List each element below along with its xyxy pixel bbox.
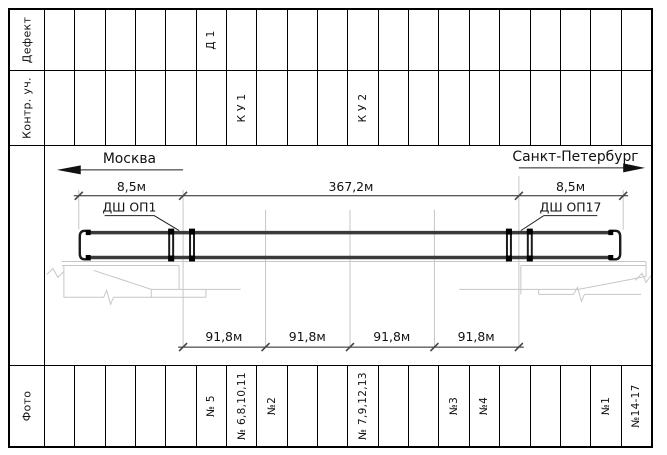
defect-cell bbox=[439, 10, 469, 70]
expansion-joint bbox=[168, 229, 174, 262]
defect-cell bbox=[45, 10, 75, 70]
photo-cell bbox=[318, 366, 348, 446]
control-cell-text: К У 1 bbox=[236, 94, 248, 123]
control-row-label: Контр. уч. bbox=[21, 77, 34, 139]
photo-cell bbox=[75, 366, 105, 446]
defect-cell: Д 1 bbox=[197, 10, 227, 70]
control-cell bbox=[500, 71, 530, 145]
control-cell bbox=[470, 71, 500, 145]
control-cell bbox=[45, 71, 75, 145]
photo-cells: № 5 № 6,8,10,11 №2 № 7,9,12,13 №3 №4 bbox=[45, 366, 651, 446]
control-cell bbox=[409, 71, 439, 145]
control-cell bbox=[561, 71, 591, 145]
expansion-joint bbox=[189, 229, 195, 262]
photo-cell: №4 bbox=[470, 366, 500, 446]
defect-cell bbox=[591, 10, 621, 70]
right-abutment bbox=[459, 261, 651, 301]
photo-cell-text: № 5 bbox=[205, 395, 217, 417]
direction-right-label: Санкт-Петербург bbox=[512, 149, 638, 165]
control-cell: К У 1 bbox=[227, 71, 257, 145]
control-cell bbox=[197, 71, 227, 145]
photo-cell-text: №1 bbox=[600, 397, 612, 415]
defect-cell bbox=[561, 10, 591, 70]
drawing-row-label-cell bbox=[10, 146, 45, 365]
defect-row-label: Дефект bbox=[21, 17, 34, 63]
photo-cell-text: № 6,8,10,11 bbox=[236, 372, 248, 440]
joint-right-label: ДШ ОП17 bbox=[540, 200, 602, 215]
dim-left-label: 8,5м bbox=[117, 179, 146, 194]
defect-cell bbox=[531, 10, 561, 70]
defect-cell bbox=[75, 10, 105, 70]
control-cell bbox=[136, 71, 166, 145]
photo-cell: №14-17 bbox=[622, 366, 651, 446]
control-cell bbox=[379, 71, 409, 145]
photo-cell bbox=[166, 366, 196, 446]
expansion-joint bbox=[506, 229, 512, 262]
photo-cell bbox=[531, 366, 561, 446]
span-dim-label: 91,8м bbox=[373, 329, 410, 344]
span-dim-label: 91,8м bbox=[205, 329, 242, 344]
defect-cell bbox=[622, 10, 651, 70]
defect-cell-text: Д 1 bbox=[205, 30, 217, 49]
control-cell bbox=[318, 71, 348, 145]
control-cell-text: К У 2 bbox=[357, 94, 369, 123]
control-row: Контр. уч. К У 1 К У 2 bbox=[10, 71, 651, 146]
control-cell: К У 2 bbox=[348, 71, 378, 145]
photo-cell bbox=[106, 366, 136, 446]
defect-cell bbox=[288, 10, 318, 70]
photo-cell: № 5 bbox=[197, 366, 227, 446]
expansion-joint bbox=[527, 229, 533, 262]
photo-row: Фото № 5 № 6,8,10,11 №2 № bbox=[10, 366, 651, 446]
defect-cell bbox=[136, 10, 166, 70]
defect-cells: Д 1 bbox=[45, 10, 651, 70]
photo-row-label: Фото bbox=[21, 391, 34, 422]
photo-cell: № 6,8,10,11 bbox=[227, 366, 257, 446]
photo-cell: №2 bbox=[257, 366, 287, 446]
control-cell bbox=[622, 71, 651, 145]
control-row-label-cell: Контр. уч. bbox=[10, 71, 45, 145]
control-cells: К У 1 К У 2 bbox=[45, 71, 651, 145]
photo-cell bbox=[500, 366, 530, 446]
photo-cell: № 7,9,12,13 bbox=[348, 366, 378, 446]
defect-row: Дефект Д 1 bbox=[10, 10, 651, 71]
photo-cell bbox=[136, 366, 166, 446]
inspection-sheet: Дефект Д 1 bbox=[8, 8, 653, 448]
defect-cell bbox=[409, 10, 439, 70]
bridge-elevation: Москва Санкт-Петербург 8,5м 367,2м 8,5м … bbox=[45, 146, 651, 365]
defect-cell bbox=[500, 10, 530, 70]
defect-cell bbox=[379, 10, 409, 70]
photo-cell-text: №3 bbox=[448, 397, 460, 415]
photo-cell bbox=[288, 366, 318, 446]
defect-cell bbox=[318, 10, 348, 70]
photo-cell-text: №14-17 bbox=[630, 384, 642, 427]
control-cell bbox=[106, 71, 136, 145]
photo-cell-text: № 7,9,12,13 bbox=[357, 372, 369, 440]
photo-cell: №3 bbox=[439, 366, 469, 446]
control-cell bbox=[591, 71, 621, 145]
drawing-row: Москва Санкт-Петербург 8,5м 367,2м 8,5м … bbox=[10, 146, 651, 366]
defect-cell bbox=[257, 10, 287, 70]
photo-cell-text: №4 bbox=[478, 397, 490, 415]
photo-cell-text: №2 bbox=[266, 397, 278, 415]
defect-cell bbox=[348, 10, 378, 70]
control-cell bbox=[166, 71, 196, 145]
joint-left-label: ДШ ОП1 bbox=[102, 200, 156, 215]
photo-cell: №1 bbox=[591, 366, 621, 446]
direction-left-label: Москва bbox=[103, 151, 156, 167]
span-dim-label: 91,8м bbox=[458, 329, 495, 344]
defect-cell bbox=[227, 10, 257, 70]
left-abutment bbox=[47, 265, 241, 304]
control-cell bbox=[439, 71, 469, 145]
photo-cell bbox=[45, 366, 75, 446]
dim-right-label: 8,5м bbox=[556, 179, 585, 194]
control-cell bbox=[257, 71, 287, 145]
control-cell bbox=[75, 71, 105, 145]
defect-cell bbox=[470, 10, 500, 70]
control-cell bbox=[288, 71, 318, 145]
arrow-left-icon bbox=[57, 165, 81, 174]
span-dim-label: 91,8м bbox=[289, 329, 326, 344]
dim-main-label: 367,2м bbox=[329, 179, 374, 194]
defect-row-label-cell: Дефект bbox=[10, 10, 45, 70]
photo-cell bbox=[561, 366, 591, 446]
photo-row-label-cell: Фото bbox=[10, 366, 45, 446]
control-cell bbox=[531, 71, 561, 145]
defect-cell bbox=[166, 10, 196, 70]
defect-cell bbox=[106, 10, 136, 70]
bridge-elevation-svg: Москва Санкт-Петербург 8,5м 367,2м 8,5м … bbox=[45, 146, 651, 365]
photo-cell bbox=[409, 366, 439, 446]
joint-leaders bbox=[105, 216, 598, 231]
photo-cell bbox=[379, 366, 409, 446]
